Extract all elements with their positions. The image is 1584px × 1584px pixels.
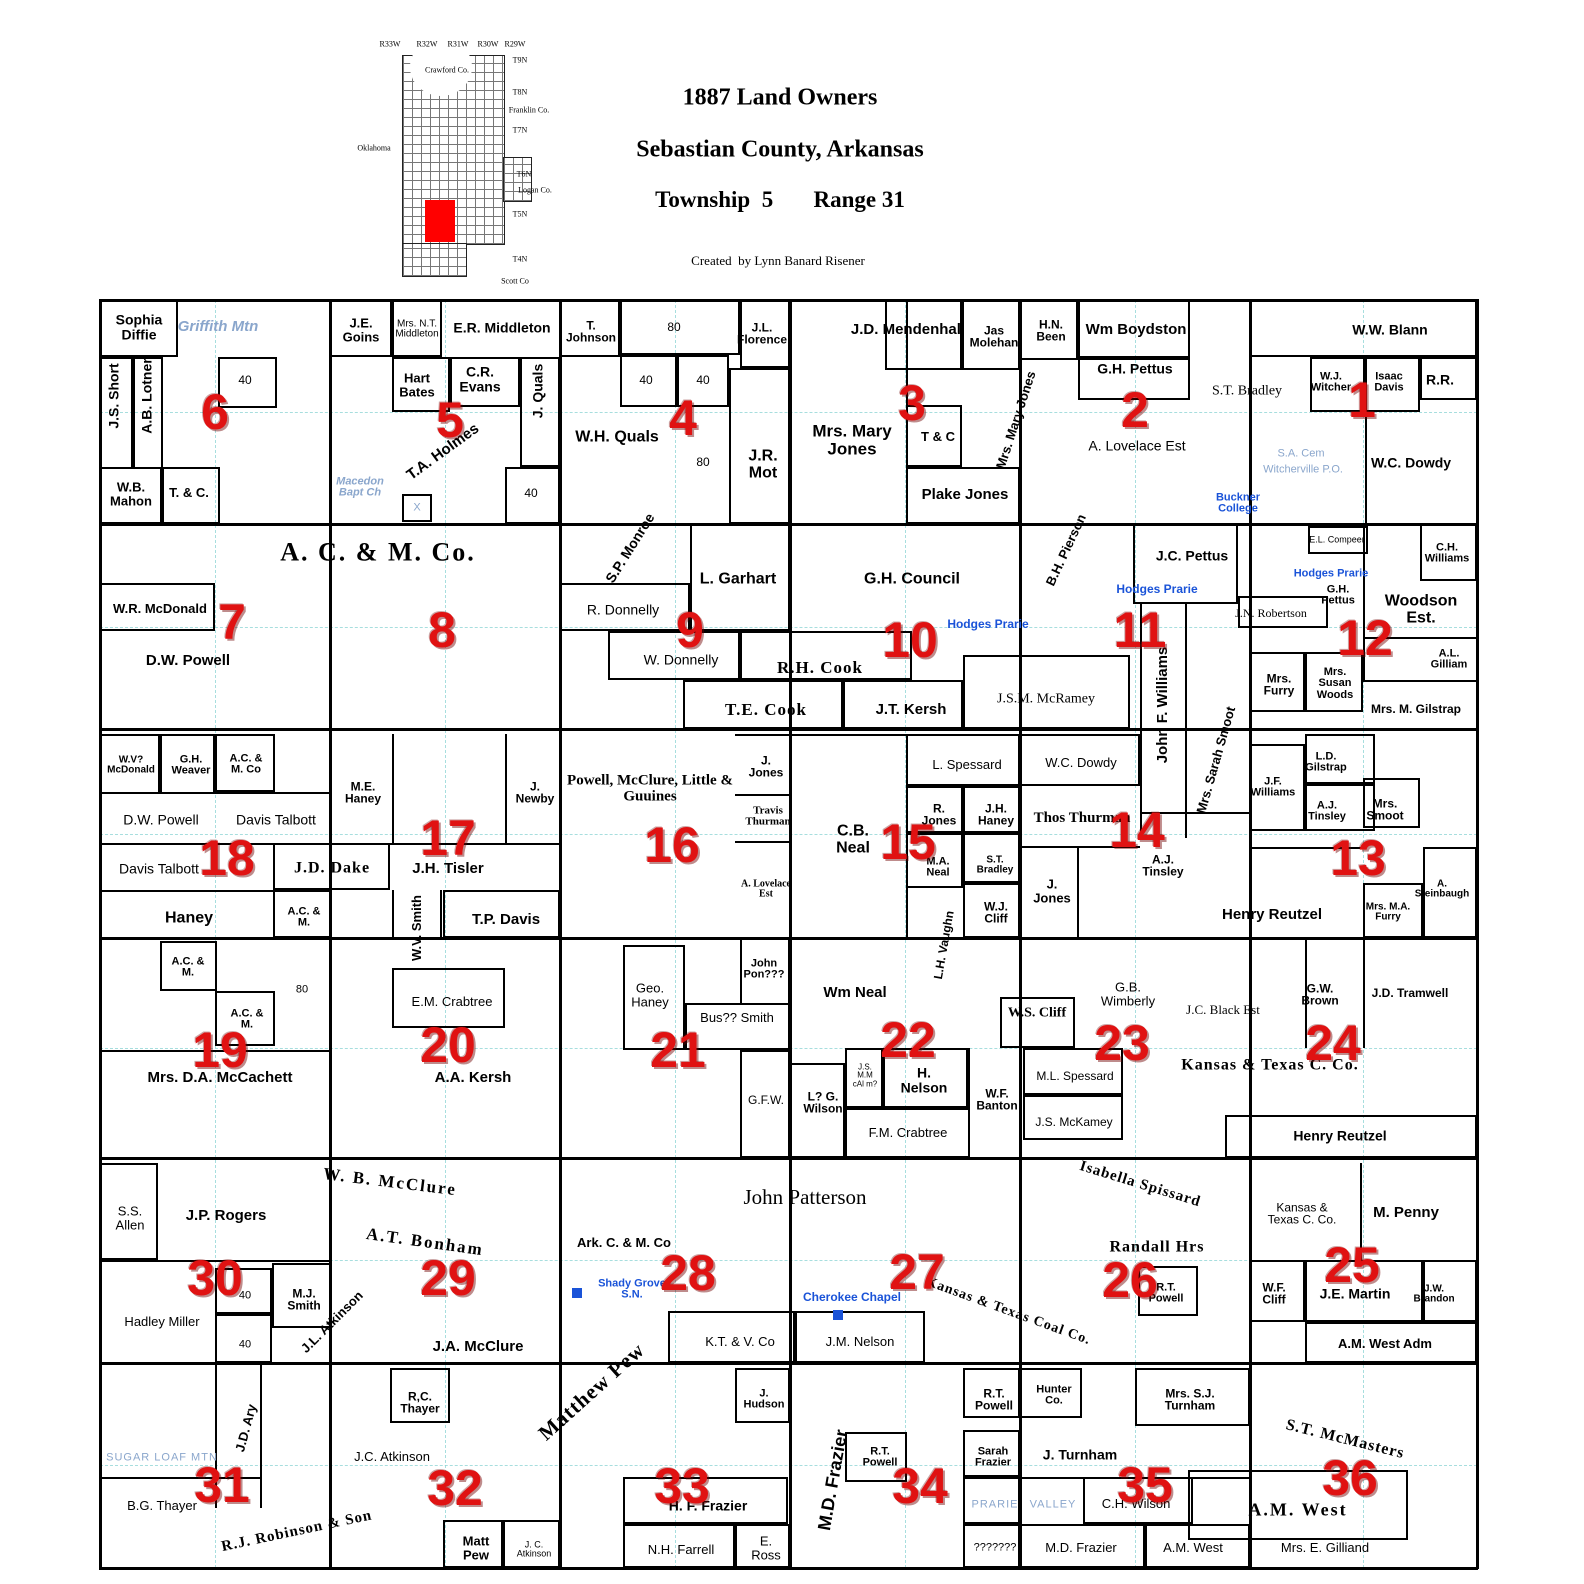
parcel-owner-label: R.R. xyxy=(1426,373,1454,388)
parcel-owner-label: Davis Talbott xyxy=(236,813,316,828)
parcel-owner-label: J.F. Williams xyxy=(1244,777,1302,800)
section-number: 31 xyxy=(194,1456,250,1514)
parcel-line xyxy=(735,734,939,736)
parcel-owner-label: W.F. Banton xyxy=(972,1088,1022,1113)
parcel-line xyxy=(392,734,394,843)
parcel-owner-label: Mrs. Smoot xyxy=(1358,798,1413,823)
parcel-owner-label: E.L. Compeer xyxy=(1309,535,1365,544)
parcel-owner-label: T. Johnson xyxy=(562,320,620,345)
parcel-owner-label: A.J. Tinsley xyxy=(1302,801,1352,824)
section-number: 6 xyxy=(201,383,229,441)
parcel-owner-label: S.T. Bradley xyxy=(1212,385,1282,400)
parcel-owner-label: Mrs. N.T. Middleton xyxy=(393,320,441,341)
parcel-owner-label: Bus?? Smith xyxy=(700,1011,774,1025)
parcel-owner-label: A.C. & M. Co xyxy=(222,754,270,777)
parcel-line xyxy=(1077,846,1079,938)
parcel-owner-label: J. Hudson xyxy=(742,1389,787,1412)
parcel-owner-label: A. C. & M. Co. xyxy=(280,538,476,565)
place-label: Hodges Prarie xyxy=(1294,568,1369,579)
place-label: PRARIE xyxy=(972,1499,1019,1510)
parcel-boundary xyxy=(1000,997,1075,1048)
parcel-owner-label: R.T. Powell xyxy=(970,1388,1018,1413)
parcel-owner-label: K.T. & V. Co xyxy=(705,1335,775,1349)
parcel-owner-label: A. Steinbaugh xyxy=(1413,880,1471,901)
parcel-owner-label: Henry Reutzel xyxy=(1293,1129,1386,1144)
place-label: Witcherville P.O. xyxy=(1263,464,1343,475)
place-label: S.A. Cem xyxy=(1277,448,1324,459)
parcel-owner-label: M. Penny xyxy=(1373,1205,1439,1221)
place-label: Macedon Bapt Ch xyxy=(331,477,389,500)
section-number: 16 xyxy=(644,816,700,874)
section-number: 22 xyxy=(880,1011,936,1069)
parcel-owner-label: J.D. Ary xyxy=(233,1403,259,1453)
parcel-line xyxy=(735,841,790,843)
section-number: 35 xyxy=(1117,1456,1173,1514)
parcel-owner-label: 40 xyxy=(639,374,652,386)
parcel-owner-label: N.H. Farrell xyxy=(648,1543,714,1557)
parcel-owner-label: A.C. & M. xyxy=(283,907,325,930)
parcel-owner-label: J.D. Mendenhall xyxy=(851,322,966,338)
parcel-owner-label: Mrs. M.A. Furry xyxy=(1366,903,1411,924)
section-number: 29 xyxy=(420,1249,476,1307)
parcel-owner-label: L. Garhart xyxy=(700,572,776,589)
parcel-owner-label: G.H. Pettus xyxy=(1097,362,1172,377)
parcel-owner-label: J.C. Atkinson xyxy=(354,1450,430,1464)
plat-map-page: 1887 Land Owners Sebastian County, Arkan… xyxy=(0,0,1584,1584)
parcel-owner-label: H. Nelson xyxy=(895,1065,953,1094)
quarter-section-line xyxy=(675,300,676,1568)
parcel-owner-label: T. & C. xyxy=(169,486,209,500)
parcel-owner-label: J. Quals xyxy=(531,364,546,418)
section-number: 19 xyxy=(192,1021,248,1079)
parcel-owner-label: L.D. Gilstrap xyxy=(1299,752,1354,775)
parcel-owner-label: W.W. Blann xyxy=(1352,323,1427,338)
parcel-owner-label: D.W. Powell xyxy=(146,653,230,669)
section-number: 2 xyxy=(1121,381,1149,439)
parcel-owner-label: E.R. Middleton xyxy=(447,321,557,336)
parcel-owner-label: Powell, McClure, Little & Guuines xyxy=(565,773,735,804)
section-number: 7 xyxy=(218,593,246,651)
parcel-owner-label: G.F.W. xyxy=(748,1094,784,1106)
parcel-owner-label: ??????? xyxy=(974,1542,1017,1553)
inset-label: R29W xyxy=(505,40,526,49)
section-number: 18 xyxy=(199,829,255,887)
place-label: X xyxy=(413,502,420,513)
parcel-owner-label: A. Lovelace Est xyxy=(739,880,794,901)
section-number: 32 xyxy=(427,1459,483,1517)
parcel-owner-label: A.M. West xyxy=(1163,1541,1223,1555)
parcel-owner-label: S.P. Monroe xyxy=(603,511,657,586)
parcel-owner-label: W. B. McClure xyxy=(322,1165,458,1199)
parcel-owner-label: Mrs. E. Gilliand xyxy=(1281,1541,1369,1555)
parcel-line xyxy=(440,890,442,938)
parcel-owner-label: F.M. Crabtree xyxy=(869,1126,948,1140)
parcel-owner-label: J. Turnham xyxy=(1043,1448,1117,1463)
parcel-owner-label: John F. Williams xyxy=(1155,647,1171,764)
parcel-owner-label: C.B. Neal xyxy=(826,823,881,856)
parcel-line xyxy=(1363,938,1365,1048)
parcel-owner-label: Plake Jones xyxy=(922,487,1009,503)
parcel-owner-label: J.C. Black Est xyxy=(1186,1003,1260,1017)
parcel-owner-label: E.M. Crabtree xyxy=(412,995,493,1009)
parcel-owner-label: S.S. Allen xyxy=(109,1204,151,1231)
parcel-owner-label: Matthew Pew xyxy=(535,1339,649,1445)
place-label: Hodges Prarie xyxy=(947,618,1028,630)
parcel-owner-label: Mrs. Mary Jones xyxy=(792,422,912,457)
parcel-owner-label: Travis Thurman xyxy=(738,806,798,829)
section-number: 15 xyxy=(880,813,936,871)
parcel-owner-label: W.F. Cliff xyxy=(1254,1282,1294,1307)
parcel-owner-label: J.S. McKamey xyxy=(1035,1116,1112,1128)
section-number: 9 xyxy=(676,601,704,659)
page-subtitle-township-range: Township 5 Range 31 xyxy=(655,187,905,213)
parcel-owner-label: Matt Pew xyxy=(454,1534,499,1561)
inset-highlight-township xyxy=(425,200,455,242)
inset-label: R32W xyxy=(417,40,438,49)
inset-township-grid xyxy=(503,157,532,202)
parcel-owner-label: W.B. Mahon xyxy=(102,480,160,507)
section-number: 27 xyxy=(889,1243,945,1301)
parcel-owner-label: L.H. Vaughn xyxy=(932,910,956,980)
parcel-owner-label: 40 xyxy=(238,374,251,386)
parcel-owner-label: J.R. Mot xyxy=(741,448,786,481)
parcel-owner-label: Kansas & Texas Coal Co. xyxy=(924,1275,1093,1348)
page-subtitle-county: Sebastian County, Arkansas xyxy=(636,137,923,164)
parcel-line xyxy=(100,890,330,892)
parcel-owner-label: A.B. Lotner xyxy=(140,358,155,433)
parcel-owner-label: Mrs. M. Gilstrap xyxy=(1371,703,1461,715)
parcel-owner-label: Henry Reutzel xyxy=(1222,907,1322,923)
parcel-owner-label: C.R. Evans xyxy=(445,364,515,393)
parcel-boundary xyxy=(729,368,790,524)
parcel-owner-label: Hunter Co. xyxy=(1030,1385,1078,1408)
landmark-marker-icon xyxy=(833,1310,843,1320)
section-number: 12 xyxy=(1337,609,1393,667)
section-number: 33 xyxy=(654,1457,710,1515)
place-label: Hodges Prarie xyxy=(1116,583,1197,595)
section-number: 25 xyxy=(1324,1236,1380,1294)
inset-label: T8N xyxy=(513,88,528,97)
parcel-owner-label: A.M. West Adm xyxy=(1338,1337,1432,1351)
inset-label: T6N xyxy=(517,170,532,179)
page-title: 1887 Land Owners xyxy=(683,85,878,112)
parcel-owner-label: Hadley Miller xyxy=(124,1315,199,1329)
parcel-owner-label: G.H. Pettus xyxy=(1316,585,1361,608)
parcel-owner-label: J. Jones xyxy=(745,755,787,780)
parcel-owner-label: A.L. Gilliam xyxy=(1425,649,1473,672)
parcel-owner-label: Mrs. Sarah Smoot xyxy=(1194,705,1237,815)
parcel-owner-label: L. Spessard xyxy=(932,758,1001,772)
parcel-owner-label: W.H. Quals xyxy=(575,430,659,447)
section-number: 11 xyxy=(1114,601,1167,659)
section-number: 36 xyxy=(1322,1449,1378,1507)
parcel-owner-label: J. C. Atkinson xyxy=(509,1541,559,1560)
parcel-owner-label: 40 xyxy=(524,487,537,499)
parcel-owner-label: A.C. & M. xyxy=(167,957,209,980)
inset-label: R33W xyxy=(380,40,401,49)
parcel-owner-label: Davis Talbott xyxy=(119,862,199,877)
parcel-owner-label: T.P. Davis xyxy=(472,912,540,928)
parcel-owner-label: 80 xyxy=(296,984,308,995)
section-number: 8 xyxy=(428,601,456,659)
parcel-owner-label: M.E. Haney xyxy=(339,781,387,806)
place-label: Cherokee Chapel xyxy=(803,1291,901,1303)
parcel-owner-label: J.L. Florence xyxy=(733,322,791,347)
parcel-line xyxy=(392,890,394,938)
parcel-owner-label: W.C. Dowdy xyxy=(1045,756,1117,770)
section-number: 24 xyxy=(1305,1014,1361,1072)
parcel-owner-label: J.H. Haney xyxy=(972,803,1020,828)
parcel-owner-label: Mrs. S.J. Turnham xyxy=(1146,1388,1234,1413)
parcel-owner-label: J.S. M.M cAl m? xyxy=(852,1064,878,1089)
parcel-line xyxy=(505,734,507,843)
parcel-owner-label: J.N. Robertson xyxy=(1235,607,1307,619)
parcel-owner-label: Mrs. Mary Jones xyxy=(994,369,1038,470)
section-number: 20 xyxy=(420,1016,476,1074)
inset-label: Logan Co. xyxy=(518,186,552,195)
parcel-owner-label: D.W. Powell xyxy=(123,813,198,828)
parcel-owner-label: J.D. Tramwell xyxy=(1372,987,1449,999)
landmark-marker-icon xyxy=(572,1288,582,1298)
parcel-owner-label: J.S.M. McRamey xyxy=(997,693,1095,708)
parcel-owner-label: Mrs. Furry xyxy=(1258,673,1300,698)
parcel-owner-label: H.N. Been xyxy=(1029,319,1074,344)
parcel-line xyxy=(1363,680,1477,682)
parcel-owner-label: John Pon??? xyxy=(737,959,792,982)
inset-label: Oklahoma xyxy=(357,144,390,153)
parcel-owner-label: R. Donnelly xyxy=(587,603,659,618)
inset-label: R31W xyxy=(448,40,469,49)
section-number: 10 xyxy=(882,611,938,669)
parcel-line xyxy=(735,794,790,796)
parcel-owner-label: E. Ross xyxy=(747,1534,785,1561)
parcel-owner-label: G.H. Council xyxy=(864,572,960,589)
parcel-owner-label: W.R. McDonald xyxy=(113,602,207,616)
parcel-owner-label: 80 xyxy=(696,456,709,468)
place-label: Griffith Mtn xyxy=(178,319,259,335)
parcel-owner-label: Isabella Spissard xyxy=(1078,1159,1203,1211)
section-number: 26 xyxy=(1102,1251,1158,1309)
parcel-owner-label: W.J. Cliff xyxy=(975,901,1017,926)
parcel-owner-label: M.D. Frazier xyxy=(1045,1541,1117,1555)
parcel-owner-label: Haney xyxy=(165,911,213,928)
parcel-owner-label: C.H. Williams xyxy=(1421,543,1473,566)
parcel-owner-label: Geo. Haney xyxy=(621,981,679,1008)
inset-label: R30W xyxy=(478,40,499,49)
parcel-owner-label: J.C. Pettus xyxy=(1156,549,1228,564)
section-number: 30 xyxy=(187,1249,243,1307)
section-number: 34 xyxy=(892,1457,948,1515)
section-number: 23 xyxy=(1094,1014,1150,1072)
parcel-owner-label: J.S. Short xyxy=(107,363,122,428)
parcel-owner-label: M.J. Smith xyxy=(280,1288,328,1313)
parcel-owner-label: J. Jones xyxy=(1030,877,1075,904)
parcel-owner-label: 80 xyxy=(667,321,680,333)
parcel-owner-label: Sarah Frazier xyxy=(967,1447,1019,1470)
inset-label: T5N xyxy=(513,210,528,219)
inset-label: T7N xyxy=(513,126,528,135)
section-number: 14 xyxy=(1109,801,1165,859)
parcel-owner-label: J.P. Rogers xyxy=(186,1208,267,1224)
parcel-owner-label: J.E. Goins xyxy=(336,316,386,343)
inset-label: Crawford Co. xyxy=(425,66,469,75)
parcel-owner-label: W.S. Cliff xyxy=(1008,1007,1066,1022)
parcel-owner-label: J.D. Dake xyxy=(294,861,370,878)
inset-label: Franklin Co. xyxy=(509,106,549,115)
parcel-owner-label: Mrs. Susan Woods xyxy=(1309,667,1361,701)
parcel-owner-label: W.V? McDonald xyxy=(104,756,158,777)
parcel-line xyxy=(1185,604,1187,838)
parcel-owner-label: W.C. Dowdy xyxy=(1371,456,1451,471)
parcel-owner-label: B.G. Thayer xyxy=(127,1499,197,1513)
parcel-owner-label: T & C xyxy=(921,430,955,444)
parcel-owner-label: J.W. Brandon xyxy=(1409,1285,1459,1306)
credit-line: Created by Lynn Banard Risener xyxy=(691,253,865,269)
section-number: 17 xyxy=(420,809,476,867)
parcel-owner-label: L? G. Wilson xyxy=(798,1091,848,1116)
parcel-owner-label: 40 xyxy=(696,374,709,386)
parcel-owner-label: R.J. Robinson & Son xyxy=(220,1508,374,1555)
parcel-owner-label: 40 xyxy=(239,1339,251,1350)
parcel-owner-label: R.H. Cook xyxy=(777,659,863,677)
parcel-owner-label: R,C. Thayer xyxy=(394,1391,446,1416)
section-number: 21 xyxy=(650,1021,706,1079)
parcel-owner-label: Sophia Diffie xyxy=(105,312,173,341)
parcel-owner-label: J. Newby xyxy=(511,781,559,806)
parcel-owner-label: G.B. Wimberly xyxy=(1094,980,1162,1007)
parcel-owner-label: Ark. C. & M. Co xyxy=(577,1236,671,1250)
inset-label: T4N xyxy=(513,255,528,264)
parcel-line xyxy=(968,1048,970,1158)
parcel-line xyxy=(100,792,330,794)
parcel-owner-label: Wm Boydston xyxy=(1086,322,1187,338)
parcel-owner-label: G.H. Weaver xyxy=(167,755,215,778)
parcel-owner-label: Jas Molehan xyxy=(967,325,1022,350)
parcel-owner-label: T.E. Cook xyxy=(725,701,807,719)
section-number: 5 xyxy=(436,391,464,449)
parcel-owner-label: J.A. McClure xyxy=(433,1339,524,1355)
section-number: 3 xyxy=(898,374,926,432)
parcel-owner-label: S.T. Bradley xyxy=(971,856,1019,877)
section-number: 13 xyxy=(1330,829,1386,887)
parcel-owner-label: John Patterson xyxy=(743,1187,866,1209)
parcel-owner-label: J.T. Kersh xyxy=(876,702,947,718)
parcel-owner-label: J.M. Nelson xyxy=(826,1335,895,1349)
parcel-owner-label: G.W. Brown xyxy=(1296,983,1344,1008)
place-label: VALLEY xyxy=(1030,1499,1077,1510)
parcel-owner-label: W.V. Smith xyxy=(410,895,424,961)
section-number: 28 xyxy=(660,1244,716,1302)
parcel-owner-label: A. Lovelace Est xyxy=(1082,439,1192,454)
inset-township-grid xyxy=(402,243,467,277)
section-number: 4 xyxy=(669,389,697,447)
place-label: Buckner College xyxy=(1208,493,1268,516)
inset-label: Scott Co xyxy=(501,277,529,286)
parcel-owner-label: Kansas & Texas C. Co. xyxy=(1260,1202,1345,1227)
section-number: 1 xyxy=(1348,371,1376,429)
parcel-owner-label: Wm Neal xyxy=(823,985,886,1001)
inset-label: T9N xyxy=(513,56,528,65)
parcel-line xyxy=(260,1363,262,1508)
